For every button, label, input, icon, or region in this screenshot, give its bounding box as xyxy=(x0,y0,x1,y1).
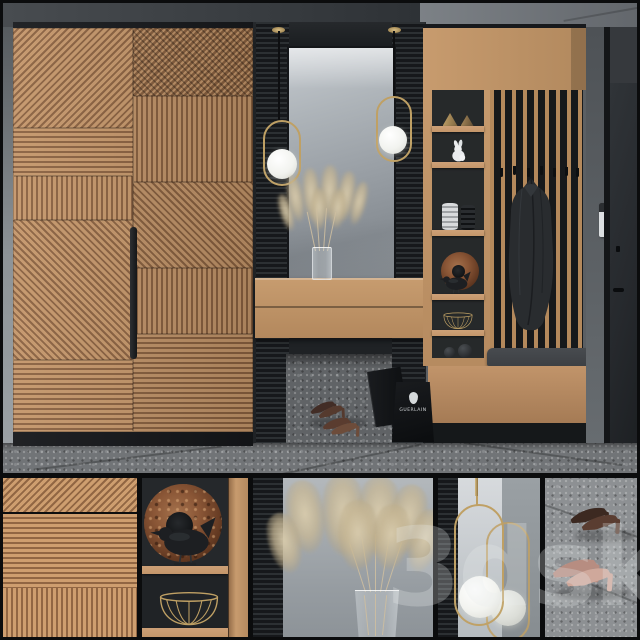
bench-base xyxy=(428,366,602,423)
slat-vertical-section xyxy=(3,588,137,637)
entry-door xyxy=(610,83,637,443)
wardrobe-plinth xyxy=(13,432,253,446)
lamp-cord-fitting xyxy=(475,478,478,496)
bird-figurine xyxy=(439,271,473,295)
wall-left-strip xyxy=(3,27,13,443)
hallway-furniture-render: GUERLAIN xyxy=(0,0,640,640)
bench-cushion xyxy=(487,348,602,366)
ribbed-vase-black xyxy=(461,205,475,230)
unit-top-band xyxy=(423,28,586,90)
high-heels-pair-pink xyxy=(549,547,632,598)
pyramid-decor xyxy=(443,113,458,126)
shelf-frame-side xyxy=(228,478,248,637)
door-panel-vertical xyxy=(133,268,253,334)
slat-horizontal-section xyxy=(3,514,137,588)
vase-stem xyxy=(382,595,387,635)
detail-panel-bird-decor xyxy=(142,478,248,637)
shelf-cell-disc xyxy=(432,236,484,294)
shelf-cell-basket xyxy=(432,300,484,330)
pyramid-decor xyxy=(461,115,474,126)
shelf-board xyxy=(142,566,228,574)
door-handle xyxy=(613,288,624,292)
rabbit-figurine xyxy=(449,139,468,162)
shopping-bag-front: GUERLAIN xyxy=(392,382,434,442)
lamp-globe xyxy=(379,126,407,154)
decor-sphere xyxy=(444,347,455,358)
high-heels-pair xyxy=(321,411,372,441)
vase-stem xyxy=(364,595,369,635)
ceiling-mount xyxy=(388,27,401,33)
shelf-cell-pyramids xyxy=(432,90,484,126)
detail-panel-pampas xyxy=(253,478,433,637)
wire-basket xyxy=(442,312,474,330)
unit-plinth xyxy=(423,423,602,443)
door-panel-vertical xyxy=(13,176,133,220)
door-panel-diagonal xyxy=(13,220,133,360)
decor-sphere xyxy=(458,344,472,358)
wardrobe-handle xyxy=(130,227,137,359)
bag-logo-shield xyxy=(409,392,418,404)
glass-vase xyxy=(353,590,401,637)
door-panel-horizontal xyxy=(13,128,133,176)
detail-strip xyxy=(3,478,637,637)
door-panel-crosshatch xyxy=(133,28,253,96)
door-panel-horizontal xyxy=(133,334,253,432)
shelf-board xyxy=(142,628,228,637)
door-panel-vertical xyxy=(133,96,253,182)
slat-diagonal-section xyxy=(3,478,137,512)
detail-panel-lamp xyxy=(438,478,540,637)
bird-figurine xyxy=(142,516,228,566)
wardrobe xyxy=(13,22,253,446)
lamp-globe xyxy=(459,576,501,618)
door-panel-diagonal xyxy=(13,28,133,128)
console-drawers xyxy=(255,278,433,338)
glass-vase xyxy=(312,247,332,280)
wardrobe-door-left xyxy=(13,28,133,432)
console-drawer-seam xyxy=(255,306,433,308)
door-knob xyxy=(616,246,620,252)
coat-hook xyxy=(576,168,579,177)
open-shelf-column xyxy=(423,90,493,366)
shelf-cell-spheres xyxy=(432,336,484,358)
lamp-cord xyxy=(278,31,280,121)
console-top-edge xyxy=(255,278,433,280)
console-shadow xyxy=(286,354,392,368)
coat-hook xyxy=(565,167,568,176)
wire-basket xyxy=(158,590,220,628)
vase-stem xyxy=(375,594,376,636)
ribbed-vase-white xyxy=(442,203,458,230)
door-panel-horizontal xyxy=(13,360,133,432)
door-panel-diagonal xyxy=(133,182,253,268)
mirror-light-streak xyxy=(289,48,394,96)
bag-brand-label: GUERLAIN xyxy=(392,408,434,413)
main-render: GUERLAIN xyxy=(3,3,637,473)
hanging-coat xyxy=(502,175,560,335)
detail-panel-slats xyxy=(3,478,137,637)
shelf-cell-rabbit xyxy=(432,132,484,162)
high-heels-pair-dark xyxy=(568,498,636,539)
coat-hook xyxy=(540,166,543,175)
band-side-face xyxy=(571,28,586,90)
shelf-cell-vases xyxy=(432,168,484,230)
coat-hook xyxy=(513,166,516,175)
lamp-cord xyxy=(393,31,395,97)
detail-panel-heels xyxy=(545,478,637,637)
wardrobe-door-right xyxy=(133,28,253,432)
